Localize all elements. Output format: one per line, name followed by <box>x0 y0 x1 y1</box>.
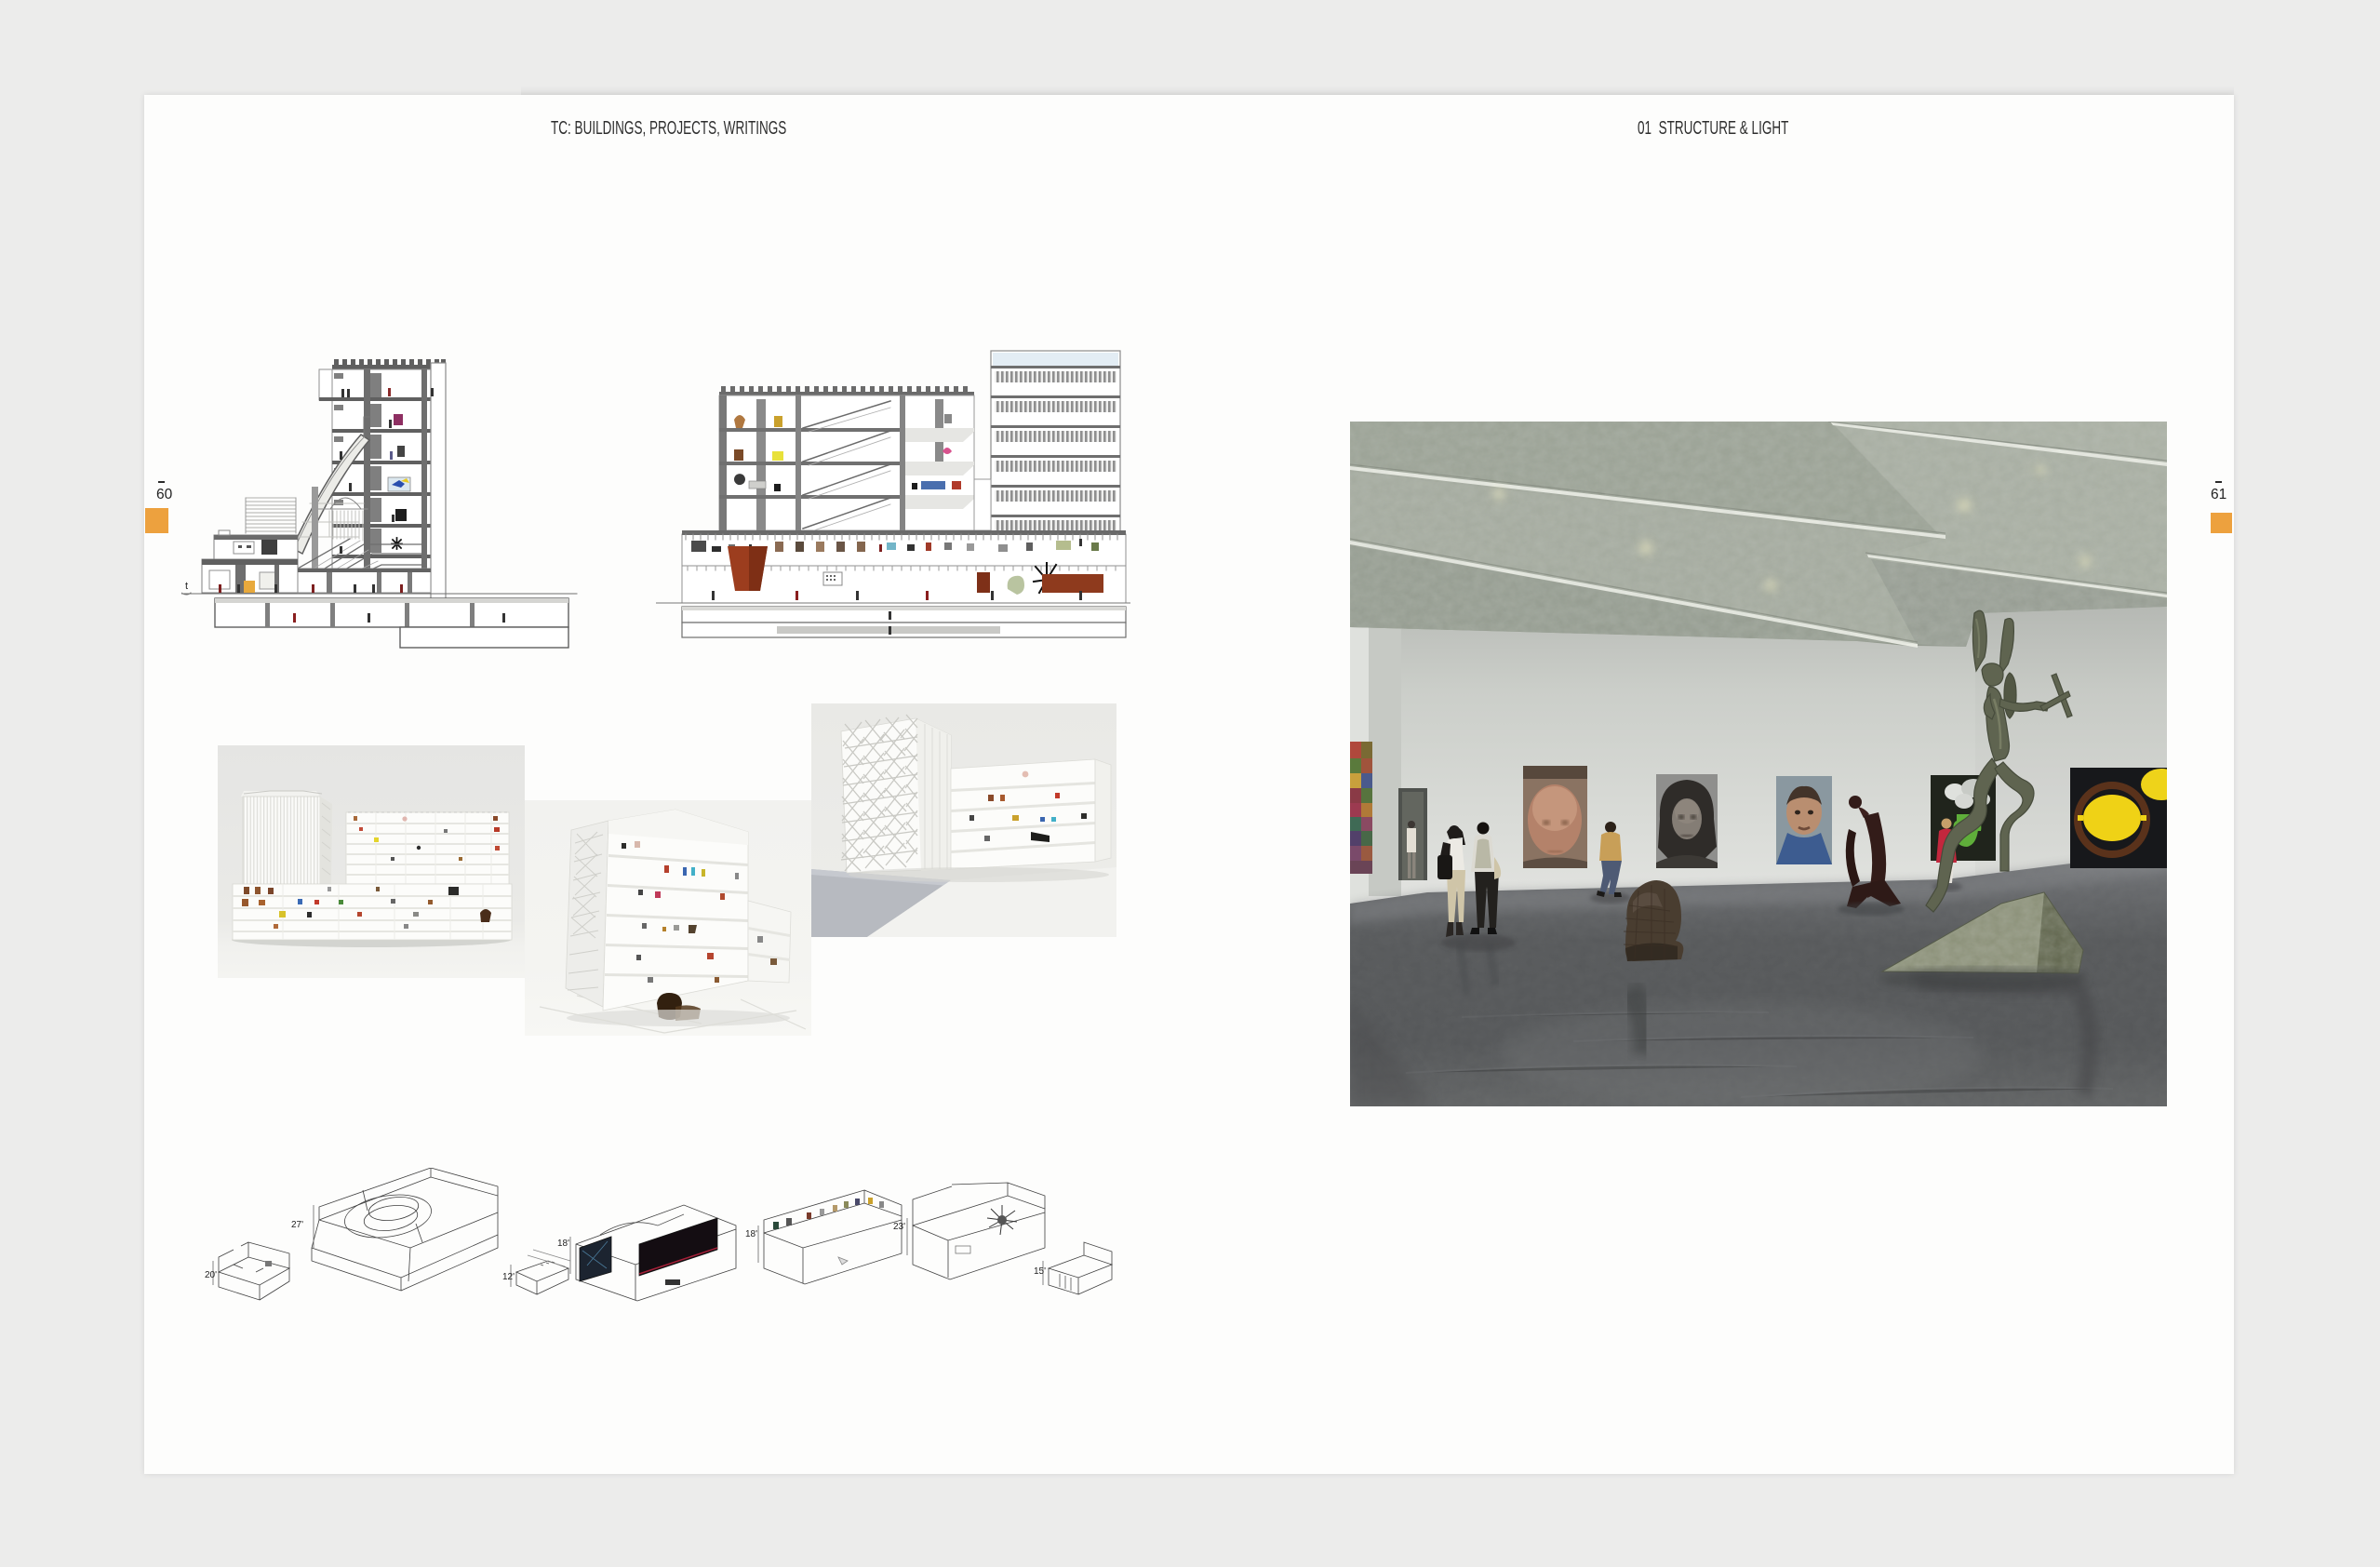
svg-text:27': 27' <box>291 1220 303 1230</box>
svg-text:18': 18' <box>745 1229 757 1239</box>
svg-text:18': 18' <box>557 1239 569 1249</box>
svg-text:15': 15' <box>1034 1266 1046 1277</box>
svg-text:t: t <box>185 581 188 592</box>
svg-text:23': 23' <box>893 1222 905 1232</box>
svg-text:20': 20' <box>205 1270 217 1280</box>
svg-text:12': 12' <box>502 1272 515 1282</box>
